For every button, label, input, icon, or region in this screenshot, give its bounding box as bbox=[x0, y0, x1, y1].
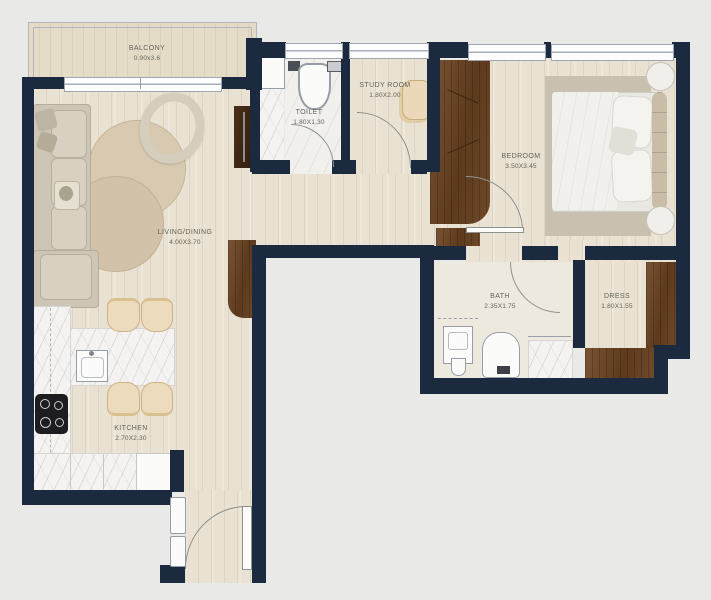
room-dims: 0.90x3.6 bbox=[129, 54, 165, 63]
wall bbox=[522, 246, 558, 260]
bath-accessory bbox=[497, 366, 510, 374]
room-dims: 1.80X1.30 bbox=[293, 118, 324, 127]
cooktop-burner bbox=[40, 399, 50, 409]
sofa-cushion bbox=[51, 110, 87, 158]
room-name: DRESS bbox=[601, 292, 632, 302]
tv-screen bbox=[243, 112, 245, 162]
wall bbox=[252, 160, 290, 174]
window-bedroom-right bbox=[551, 44, 674, 61]
room-dims: 1.80X2.00 bbox=[359, 91, 410, 100]
hall-cabinet bbox=[170, 497, 186, 534]
wall bbox=[258, 42, 286, 58]
toilet-shower-strip bbox=[258, 88, 284, 166]
entry-door-leaf bbox=[242, 506, 252, 570]
wall bbox=[420, 378, 668, 394]
nightstand bbox=[646, 206, 675, 235]
wall bbox=[170, 450, 184, 492]
sliding-door-handle bbox=[140, 78, 141, 89]
wall bbox=[22, 77, 34, 505]
room-dims: 2.70X2.30 bbox=[114, 434, 148, 443]
room-dims: 2.35X1.75 bbox=[484, 302, 515, 311]
vanity-counter bbox=[438, 318, 478, 319]
wall bbox=[420, 246, 466, 260]
bath-sink-basin bbox=[448, 332, 468, 350]
dining-chair bbox=[107, 298, 140, 332]
cooktop bbox=[35, 394, 68, 434]
sink-faucet bbox=[89, 351, 94, 356]
nightstand bbox=[646, 62, 675, 91]
room-name: BALCONY bbox=[129, 44, 165, 54]
wall bbox=[420, 245, 434, 393]
wall bbox=[332, 160, 356, 174]
cooktop-burner bbox=[54, 401, 63, 410]
bed-duvet bbox=[552, 92, 618, 210]
shower-glass bbox=[528, 336, 571, 337]
room-dims: 1.80X1.55 bbox=[601, 302, 632, 311]
wall bbox=[160, 565, 185, 583]
bed-throw-pillow bbox=[608, 126, 639, 157]
wall bbox=[440, 42, 468, 58]
sink-basin bbox=[81, 357, 104, 378]
room-name: BEDROOM bbox=[502, 152, 541, 162]
room-dims: 3.50X3.45 bbox=[502, 162, 541, 171]
wall bbox=[22, 490, 172, 505]
label-dress: DRESS 1.80X1.55 bbox=[601, 292, 632, 312]
bed-headboard bbox=[652, 92, 667, 210]
wall bbox=[411, 160, 427, 174]
label-kitchen: KITCHEN 2.70X2.30 bbox=[114, 424, 148, 444]
wall bbox=[676, 42, 690, 358]
label-study: STUDY ROOM 1.80X2.00 bbox=[359, 81, 410, 101]
room-dims: 4.00X3.70 bbox=[158, 238, 213, 247]
hall-cabinet bbox=[170, 536, 186, 567]
window-toilet bbox=[285, 43, 343, 59]
dining-chair bbox=[141, 382, 173, 416]
counter-divider bbox=[103, 454, 104, 489]
counter-divider bbox=[70, 454, 71, 489]
label-living: LIVING/DINING 4.00X3.70 bbox=[158, 228, 213, 248]
wall bbox=[252, 245, 266, 583]
sofa-cushion bbox=[51, 206, 87, 250]
cooktop-burner bbox=[40, 417, 51, 428]
table-plant bbox=[59, 186, 73, 201]
dress-wardrobe-bottom bbox=[585, 348, 655, 378]
room-name: LIVING/DINING bbox=[158, 228, 213, 238]
wall bbox=[252, 245, 434, 258]
balcony-sliding-door bbox=[64, 77, 222, 92]
window-study bbox=[349, 43, 429, 59]
wall bbox=[341, 42, 350, 160]
floor-plan: BALCONY 0.90x3.6 TOILET 1.80X1.30 STUDY … bbox=[0, 0, 711, 600]
bedroom-door-leaf bbox=[466, 227, 524, 233]
label-toilet: TOILET 1.80X1.30 bbox=[293, 108, 324, 128]
bath-wc bbox=[451, 358, 466, 376]
toilet-accessory bbox=[327, 61, 342, 72]
cooktop-burner bbox=[55, 418, 64, 427]
shower-area bbox=[528, 340, 573, 379]
label-bedroom: BEDROOM 3.50X3.45 bbox=[502, 152, 541, 172]
wall bbox=[22, 77, 66, 89]
label-balcony: BALCONY 0.90x3.6 bbox=[129, 44, 165, 64]
sofa-cushion bbox=[40, 254, 92, 300]
label-bath: BATH 2.35X1.75 bbox=[484, 292, 515, 312]
wall bbox=[427, 42, 440, 172]
wall bbox=[573, 260, 585, 348]
room-name: TOILET bbox=[293, 108, 324, 118]
dress-wardrobe-right bbox=[646, 262, 676, 348]
dining-chair bbox=[141, 298, 173, 332]
window-bedroom-left bbox=[468, 44, 546, 61]
bed-pillow bbox=[611, 149, 654, 203]
kitchen-appliance bbox=[136, 453, 174, 492]
room-name: BATH bbox=[484, 292, 515, 302]
room-name: KITCHEN bbox=[114, 424, 148, 434]
wall bbox=[585, 246, 690, 260]
dining-chair bbox=[107, 382, 140, 416]
room-name: STUDY ROOM bbox=[359, 81, 410, 91]
